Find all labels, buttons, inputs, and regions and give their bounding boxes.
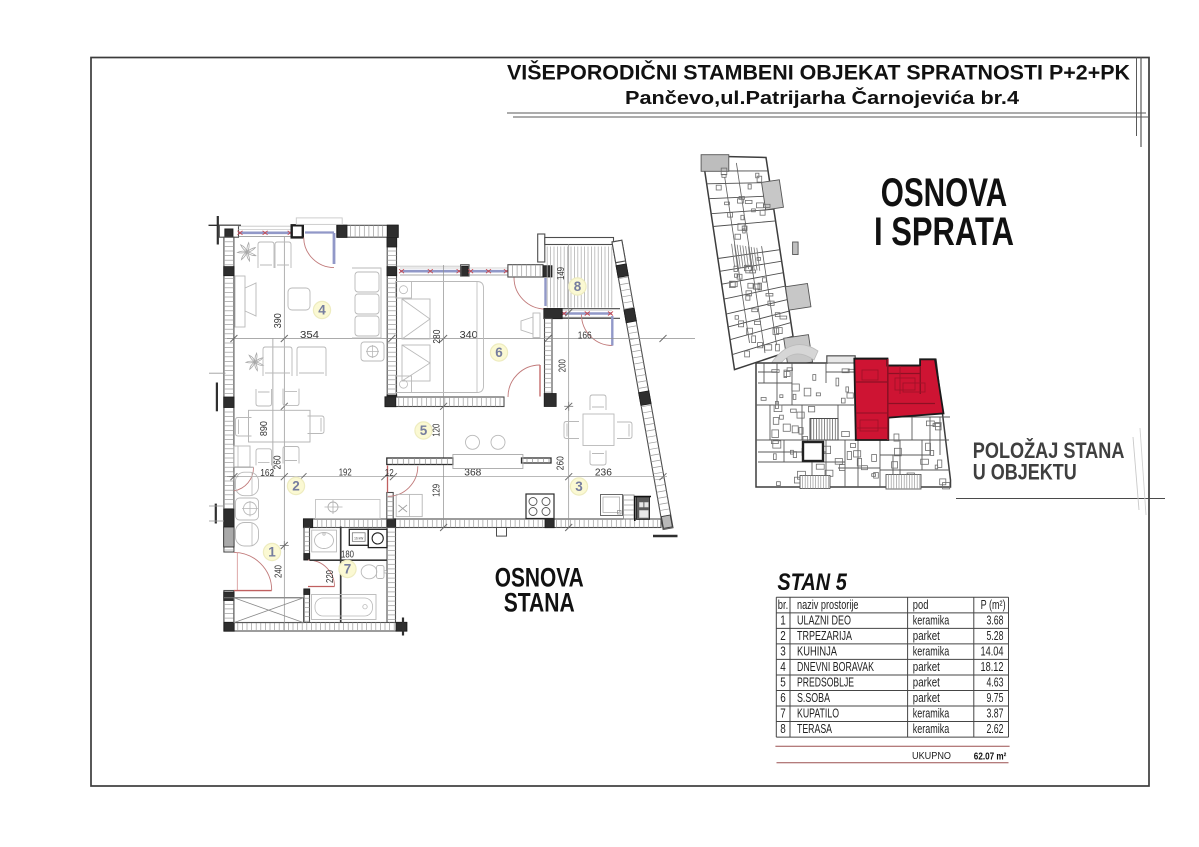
svg-text:TERASA: TERASA xyxy=(797,722,832,736)
svg-text:7: 7 xyxy=(344,562,352,577)
svg-text:PREDSOBLJE: PREDSOBLJE xyxy=(797,676,854,690)
svg-text:129: 129 xyxy=(431,484,442,497)
svg-text:parket: parket xyxy=(913,691,940,705)
svg-text:8: 8 xyxy=(574,279,582,294)
svg-text:P (m²): P (m²) xyxy=(981,598,1006,612)
svg-text:240: 240 xyxy=(273,565,284,578)
svg-text:236: 236 xyxy=(595,468,612,479)
svg-text:keramika: keramika xyxy=(913,613,950,627)
svg-text:S.SOBA: S.SOBA xyxy=(797,691,830,705)
svg-text:3: 3 xyxy=(575,479,583,494)
svg-text:ULAZNI DEO: ULAZNI DEO xyxy=(797,613,851,627)
svg-text:UKUPNO: UKUPNO xyxy=(912,750,951,762)
svg-text:naziv prostorije: naziv prostorije xyxy=(797,598,859,612)
svg-text:DNEVNI BORAVAK: DNEVNI BORAVAK xyxy=(797,660,874,674)
svg-text:18.12: 18.12 xyxy=(981,660,1004,674)
svg-text:3: 3 xyxy=(780,644,786,658)
svg-text:14.04: 14.04 xyxy=(981,644,1004,658)
svg-text:340: 340 xyxy=(460,330,478,341)
svg-text:5: 5 xyxy=(420,423,428,438)
svg-text:3.68: 3.68 xyxy=(987,613,1004,627)
svg-text:2.62: 2.62 xyxy=(987,722,1004,736)
svg-text:16 kW: 16 kW xyxy=(354,537,363,541)
svg-text:5: 5 xyxy=(780,676,786,690)
svg-text:280: 280 xyxy=(432,329,443,343)
svg-text:220: 220 xyxy=(325,570,336,583)
svg-text:9.75: 9.75 xyxy=(987,691,1004,705)
svg-text:parket: parket xyxy=(913,629,940,643)
svg-text:keramika: keramika xyxy=(913,722,950,736)
svg-text:390: 390 xyxy=(273,313,284,328)
svg-text:4: 4 xyxy=(780,660,786,674)
svg-text:KUPATILO: KUPATILO xyxy=(797,707,839,721)
svg-text:2: 2 xyxy=(292,479,300,494)
svg-text:parket: parket xyxy=(913,676,940,690)
svg-text:7: 7 xyxy=(780,707,786,721)
svg-text:8: 8 xyxy=(780,722,786,736)
svg-text:KUHINJA: KUHINJA xyxy=(797,644,837,658)
svg-text:3.87: 3.87 xyxy=(987,707,1004,721)
svg-text:368: 368 xyxy=(464,468,481,479)
svg-text:166: 166 xyxy=(578,330,592,341)
svg-text:162: 162 xyxy=(260,468,274,479)
svg-text:U OBJEKTU: U OBJEKTU xyxy=(973,460,1077,485)
svg-text:parket: parket xyxy=(913,660,940,674)
svg-text:TRPEZARIJA: TRPEZARIJA xyxy=(797,629,852,643)
svg-text:4.63: 4.63 xyxy=(987,676,1004,690)
svg-text:2: 2 xyxy=(780,629,786,643)
svg-text:354: 354 xyxy=(300,330,319,341)
svg-text:4: 4 xyxy=(318,303,326,318)
svg-text:keramika: keramika xyxy=(913,707,950,721)
svg-text:VIŠEPORODIČNI STAMBENI OBJEKAT: VIŠEPORODIČNI STAMBENI OBJEKAT SPRATNOST… xyxy=(507,60,1130,85)
svg-text:192: 192 xyxy=(339,467,352,478)
svg-text:120: 120 xyxy=(431,423,442,436)
svg-text:890: 890 xyxy=(259,421,270,436)
svg-text:pod: pod xyxy=(913,598,929,612)
svg-text:260: 260 xyxy=(556,456,567,470)
svg-text:STANA: STANA xyxy=(504,588,575,618)
svg-text:6: 6 xyxy=(495,345,503,360)
svg-text:I SPRATA: I SPRATA xyxy=(874,210,1014,254)
svg-text:Pančevo,ul.Patrijarha Čarnojev: Pančevo,ul.Patrijarha Čarnojevića br.4 xyxy=(625,87,1020,108)
svg-text:12: 12 xyxy=(385,468,394,479)
svg-text:5.28: 5.28 xyxy=(987,629,1004,643)
svg-text:keramika: keramika xyxy=(913,644,950,658)
svg-text:STAN 5: STAN 5 xyxy=(777,569,847,596)
svg-text:OSNOVA: OSNOVA xyxy=(881,171,1008,215)
svg-text:br.: br. xyxy=(778,598,788,612)
svg-text:6: 6 xyxy=(780,691,786,705)
svg-text:62.07 m²: 62.07 m² xyxy=(974,750,1007,762)
svg-text:1: 1 xyxy=(780,613,786,627)
svg-text:149: 149 xyxy=(556,267,567,280)
svg-text:200: 200 xyxy=(557,359,568,372)
svg-text:1: 1 xyxy=(268,545,276,560)
svg-text:180: 180 xyxy=(341,550,354,561)
